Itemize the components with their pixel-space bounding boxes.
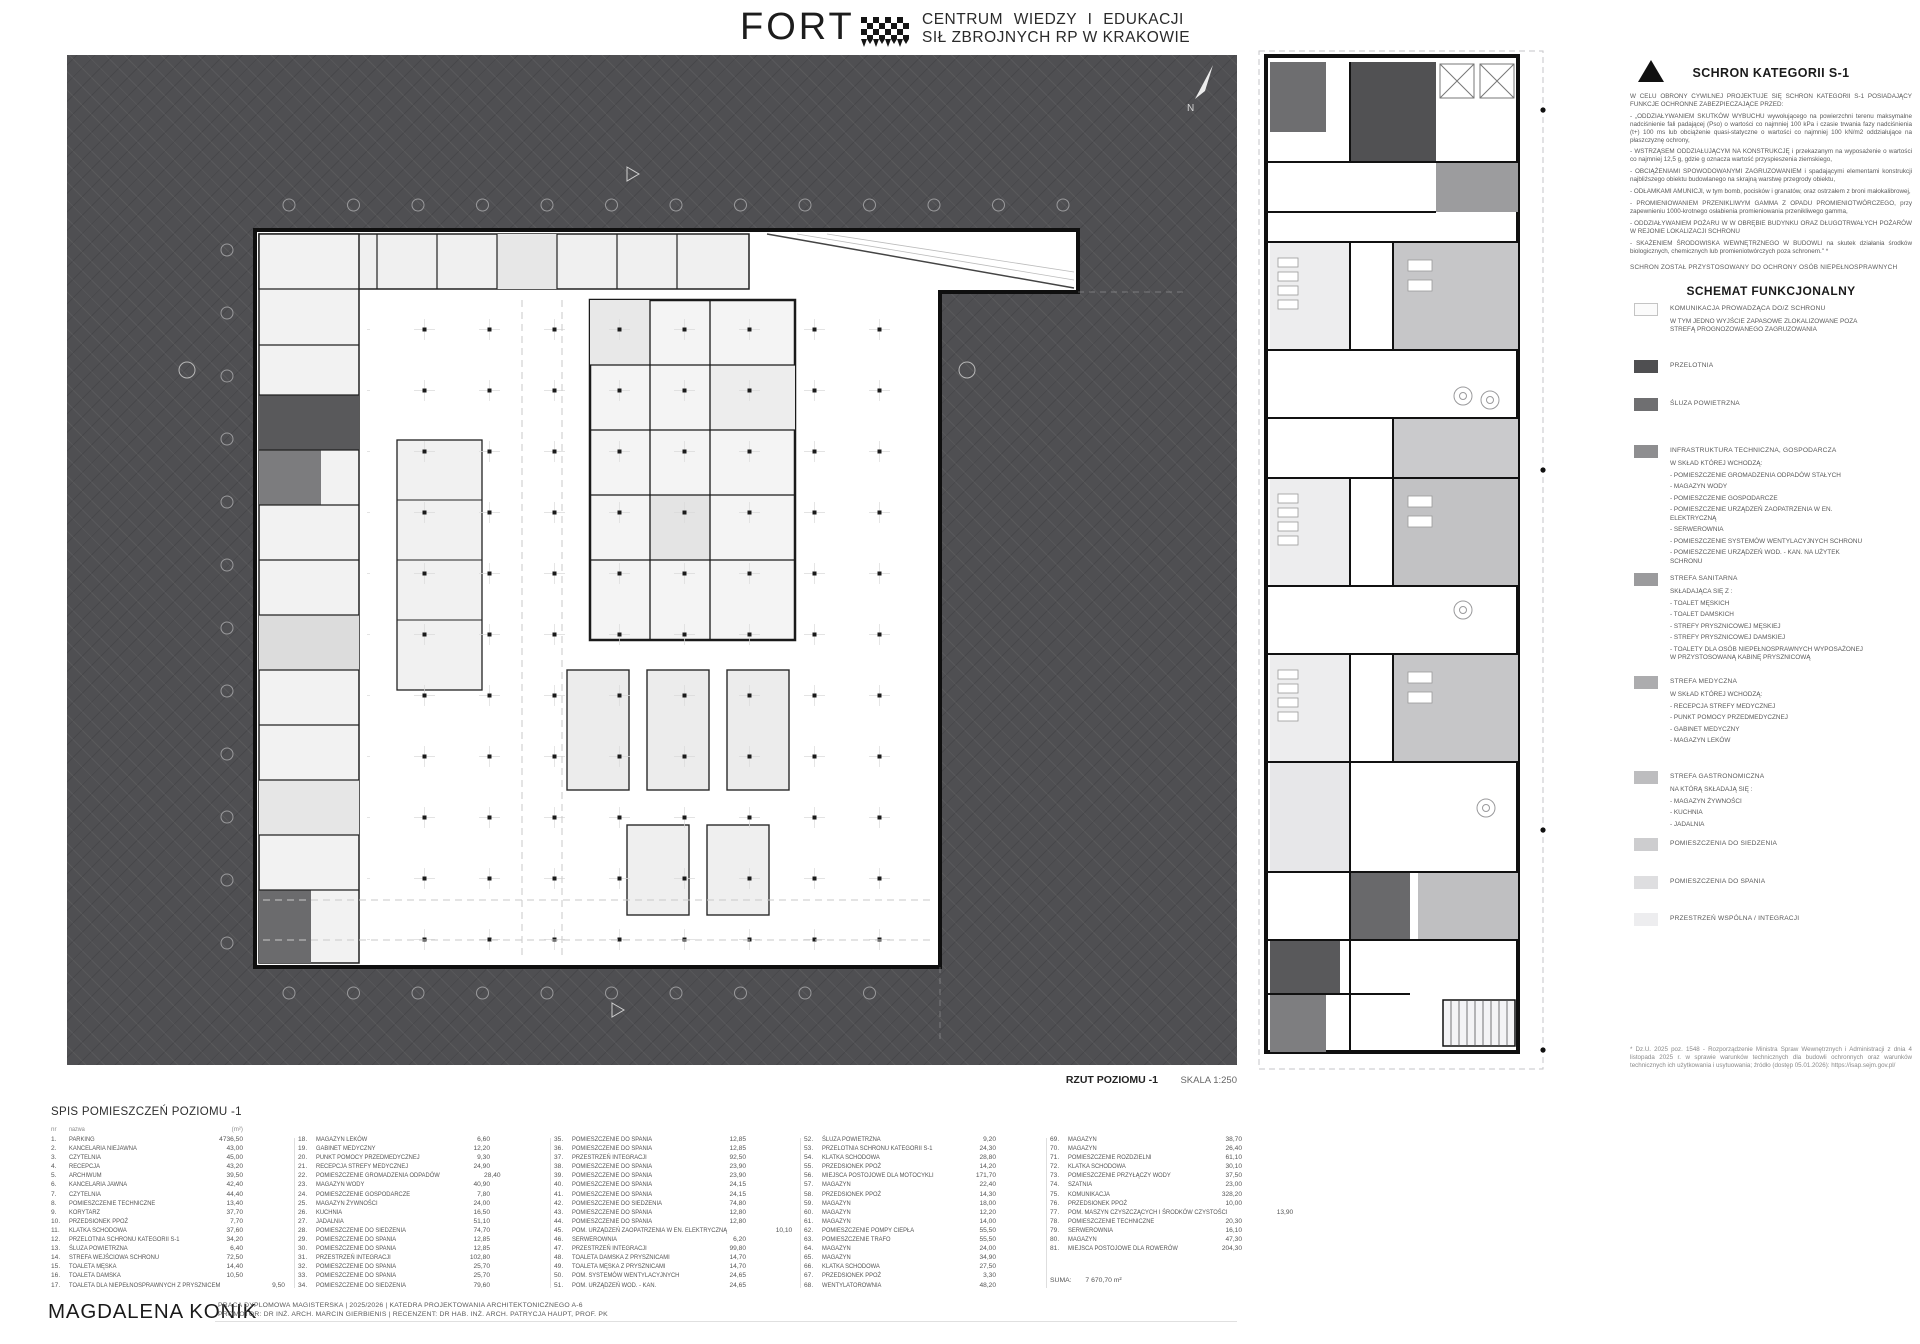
- room-name: MAGAZYN ŻYWNOŚCI: [316, 1200, 430, 1207]
- legend-label: PRZESTRZEŃ WSPÓLNA / INTEGRACJI: [1670, 915, 1799, 922]
- room-area: 24,15: [702, 1191, 746, 1198]
- room-name: PRZELOTNIA SCHRONU KATEGORII S-1: [822, 1145, 936, 1152]
- schedule-row: 58.PRZEDSIONEK PPOŻ14,30: [804, 1191, 996, 1200]
- room-name: TOALETA MĘSKA Z PRYSZNICAMI: [572, 1263, 686, 1270]
- room-name: KLATKA SCHODOWA: [822, 1263, 936, 1270]
- room-area: 12,85: [446, 1245, 490, 1252]
- room-number: 46.: [554, 1236, 572, 1243]
- schedule-row: 40.POMIESZCZENIE DO SPANIA24,15: [554, 1181, 746, 1190]
- room-name: PRZEDSIONEK PPOŻ: [822, 1191, 936, 1198]
- schedule-row: 68.WENTYLATOROWNIA48,20: [804, 1282, 996, 1291]
- shelter-bullet: - WSTRZĄSEM ODDZIAŁUJĄCYM NA KONSTRUKCJĘ…: [1630, 148, 1912, 164]
- room-area: 24,30: [952, 1145, 996, 1152]
- legend-subline: - GABINET MEDYCZNY: [1670, 726, 1870, 734]
- legend-label: STREFA GASTRONOMICZNA: [1670, 773, 1764, 780]
- room-area: 37,70: [199, 1209, 243, 1216]
- room-area: 7,80: [446, 1191, 490, 1198]
- schedule-row: 18.MAGAZYN LEKÓW6,60: [298, 1136, 490, 1145]
- legend-swatch: [1634, 838, 1658, 851]
- project-title-line2: SIŁ ZBROJNYCH RP W KRAKOWIE: [922, 29, 1190, 47]
- room-area: 12,20: [446, 1145, 490, 1152]
- schedule-row: 71.POMIESZCZENIE ROZDZIELNI61,10: [1050, 1154, 1242, 1163]
- room-number: 1.: [51, 1136, 69, 1143]
- room-number: 65.: [804, 1254, 822, 1261]
- room-name: POMIESZCZENIE DO SPANIA: [572, 1181, 686, 1188]
- legend-swatch: [1634, 913, 1658, 926]
- room-number: 76.: [1050, 1200, 1068, 1207]
- room-name: POMIESZCZENIE ROZDZIELNI: [1068, 1154, 1182, 1161]
- room-name: TOALETA DLA NIEPEŁNOSPRAWNYCH Z PRYSZNIC…: [69, 1282, 220, 1289]
- room-area: 23,90: [702, 1163, 746, 1170]
- room-number: 27.: [298, 1218, 316, 1225]
- room-area: 38,70: [1198, 1136, 1242, 1143]
- schedule-title: SPIS POMIESZCZEŃ POZIOMU -1: [51, 1106, 242, 1118]
- functional-scheme-title: SCHEMAT FUNKCJONALNY: [1630, 284, 1912, 298]
- schedule-row: 25.MAGAZYN ŻYWNOŚCI24,00: [298, 1200, 490, 1209]
- room-number: 78.: [1050, 1218, 1068, 1225]
- room-area: 22,40: [952, 1181, 996, 1188]
- schedule-row: 42.POMIESZCZENIE DO SIEDZENIA74,80: [554, 1200, 746, 1209]
- room-area: 72,50: [199, 1254, 243, 1261]
- room-number: 12.: [51, 1236, 69, 1243]
- room-name: MAGAZYN WODY: [316, 1181, 430, 1188]
- room-number: 57.: [804, 1181, 822, 1188]
- room-number: 35.: [554, 1136, 572, 1143]
- schedule-row: 2.KANCELARIA NIEJAWNA43,00: [51, 1145, 243, 1154]
- room-area: 48,20: [952, 1282, 996, 1289]
- room-area: 25,70: [446, 1263, 490, 1270]
- room-number: 44.: [554, 1218, 572, 1225]
- room-area: 55,50: [952, 1236, 996, 1243]
- room-number: 69.: [1050, 1136, 1068, 1143]
- legend-subline: - POMIESZCZENIE URZĄDZEŃ WOD. - KAN. NA …: [1670, 549, 1870, 565]
- room-name: SERWEROWNIA: [1068, 1227, 1182, 1234]
- room-name: POMIESZCZENIE DO SIEDZENIA: [572, 1200, 686, 1207]
- room-area: 10,00: [1198, 1200, 1242, 1207]
- room-number: 38.: [554, 1163, 572, 1170]
- room-area: 18,00: [952, 1200, 996, 1207]
- room-number: 56.: [804, 1172, 822, 1179]
- room-area: 39,50: [199, 1172, 243, 1179]
- room-name: PARKING: [69, 1136, 183, 1143]
- room-name: TOALETA MĘSKA: [69, 1263, 183, 1270]
- room-number: 43.: [554, 1209, 572, 1216]
- room-number: 4.: [51, 1163, 69, 1170]
- room-area: 99,80: [702, 1245, 746, 1252]
- room-number: 49.: [554, 1263, 572, 1270]
- room-area: 16,50: [446, 1209, 490, 1216]
- schedule-column: 18.MAGAZYN LEKÓW6,6019.GABINET MEDYCZNY1…: [298, 1136, 490, 1291]
- room-name: ŚLUZA POWIETRZNA: [69, 1245, 183, 1252]
- room-area: 44,40: [199, 1191, 243, 1198]
- room-area: 204,30: [1198, 1245, 1242, 1252]
- room-number: 18.: [298, 1136, 316, 1143]
- room-number: 71.: [1050, 1154, 1068, 1161]
- schedule-row: 13.ŚLUZA POWIETRZNA6,40: [51, 1245, 243, 1254]
- room-number: 64.: [804, 1245, 822, 1252]
- legend-subline: W SKŁAD KTÓREJ WCHODZĄ:: [1670, 691, 1870, 699]
- room-area: 24,00: [952, 1245, 996, 1252]
- room-area: 79,60: [446, 1282, 490, 1289]
- room-area: 51,10: [446, 1218, 490, 1225]
- legend-subline: - TOALETY DLA OSÓB NIEPEŁNOSPRAWNYCH WYP…: [1670, 646, 1870, 662]
- schedule-row: 51.POM. URZĄDZEŃ WOD. - KAN.24,65: [554, 1282, 746, 1291]
- room-name: WENTYLATOROWNIA: [822, 1282, 936, 1289]
- schedule-row: 21.RECEPCJA STREFY MEDYCZNEJ24,90: [298, 1163, 490, 1172]
- schedule-row: 60.MAGAZYN12,20: [804, 1209, 996, 1218]
- legend-subline: - JADALNIA: [1670, 821, 1870, 829]
- schedule-row: 72.KLATKA SCHODOWA30,10: [1050, 1163, 1242, 1172]
- room-number: 11.: [51, 1227, 69, 1234]
- room-area: 27,50: [952, 1263, 996, 1270]
- room-area: 12,20: [952, 1209, 996, 1216]
- room-name: STREFA WEJŚCIOWA SCHRONU: [69, 1254, 183, 1261]
- room-name: POMIESZCZENIE DO SPANIA: [572, 1172, 686, 1179]
- room-area: 24,90: [446, 1163, 490, 1170]
- room-name: TOALETA DAMSKA Z PRYSZNICAMI: [572, 1254, 686, 1261]
- room-name: POMIESZCZENIE GROMADZENIA ODPADÓW: [316, 1172, 440, 1179]
- schedule-column: 69.MAGAZYN38,7070.MAGAZYN26,4071.POMIESZ…: [1050, 1136, 1242, 1254]
- room-name: POMIESZCZENIE DO SPANIA: [572, 1163, 686, 1170]
- legend-label: STREFA MEDYCZNA: [1670, 678, 1737, 685]
- room-name: POMIESZCZENIE DO SPANIA: [316, 1236, 430, 1243]
- room-number: 17.: [51, 1282, 69, 1289]
- room-number: 2.: [51, 1145, 69, 1152]
- room-area: 13,40: [199, 1200, 243, 1207]
- room-area: 328,20: [1198, 1191, 1242, 1198]
- schedule-divider: [550, 1138, 551, 1288]
- room-area: 34,20: [199, 1236, 243, 1243]
- legend-subline: - PUNKT POMOCY PRZEDMEDYCZNEJ: [1670, 714, 1870, 722]
- room-name: RECEPCJA STREFY MEDYCZNEJ: [316, 1163, 430, 1170]
- room-area: 61,10: [1198, 1154, 1242, 1161]
- schedule-row: 39.POMIESZCZENIE DO SPANIA23,90: [554, 1172, 746, 1181]
- schedule-row: 57.MAGAZYN22,40: [804, 1181, 996, 1190]
- schedule-row: 23.MAGAZYN WODY40,90: [298, 1181, 490, 1190]
- room-number: 20.: [298, 1154, 316, 1161]
- room-name: POMIESZCZENIE TECHNICZNE: [1068, 1218, 1182, 1225]
- schedule-row: 55.PRZEDSIONEK PPOŻ14,20: [804, 1163, 996, 1172]
- schedule-row: 4.RECEPCJA43,20: [51, 1163, 243, 1172]
- schedule-row: 67.PRZEDSIONEK PPOŻ3,30: [804, 1272, 996, 1281]
- schedule-row: 28.POMIESZCZENIE DO SIEDZENIA74,70: [298, 1227, 490, 1236]
- legend-subline: - STREFY PRYSZNICOWEJ DAMSKIEJ: [1670, 634, 1870, 642]
- schedule-row: 1.PARKING4736,50: [51, 1136, 243, 1145]
- legend-label: PRZELOTNIA: [1670, 362, 1713, 369]
- room-number: 80.: [1050, 1236, 1068, 1243]
- room-name: KLATKA SCHODOWA: [1068, 1163, 1182, 1170]
- room-area: 30,10: [1198, 1163, 1242, 1170]
- schedule-row: 31.PRZESTRZEŃ INTEGRACJI102,80: [298, 1254, 490, 1263]
- room-name: PUNKT POMOCY PRZEDMEDYCZNEJ: [316, 1154, 430, 1161]
- schedule-row: 62.POMIESZCZENIE POMPY CIEPŁA55,50: [804, 1227, 996, 1236]
- room-name: MAGAZYN: [822, 1218, 936, 1225]
- room-name: PRZEDSIONEK PPOŻ: [1068, 1200, 1182, 1207]
- shelter-intro: W CELU OBRONY CYWILNEJ PROJEKTUJE SIĘ SC…: [1630, 93, 1912, 109]
- room-area: 16,10: [1198, 1227, 1242, 1234]
- room-name: POM. MASZYN CZYSZCZĄCYCH I ŚRODKÓW CZYST…: [1068, 1209, 1227, 1216]
- schedule-row: 44.POMIESZCZENIE DO SPANIA12,80: [554, 1218, 746, 1227]
- shelter-category-title: SCHRON KATEGORII S-1: [1630, 66, 1912, 80]
- room-name: SERWEROWNIA: [572, 1236, 686, 1243]
- schedule-row: 76.PRZEDSIONEK PPOŻ10,00: [1050, 1200, 1242, 1209]
- legend-sublist: NA KTÓRĄ SKŁADAJĄ SIĘ :- MAGAZYN ŻYWNOŚC…: [1670, 786, 1870, 832]
- legend-swatch: [1634, 676, 1658, 689]
- room-area: 9,50: [241, 1282, 285, 1289]
- room-name: PRZESTRZEŃ INTEGRACJI: [572, 1245, 686, 1252]
- room-area: 9,30: [446, 1154, 490, 1161]
- room-number: 47.: [554, 1245, 572, 1252]
- room-number: 61.: [804, 1218, 822, 1225]
- room-number: 50.: [554, 1272, 572, 1279]
- schedule-row: 73.POMIESZCZENIE PRZYŁĄCZY WODY37,50: [1050, 1172, 1242, 1181]
- schedule-row: 52.ŚLUZA POWIETRZNA9,20: [804, 1136, 996, 1145]
- schedule-row: 36.POMIESZCZENIE DO SPANIA12,85: [554, 1145, 746, 1154]
- shelter-bullet: - OBCIĄŻENIAMI SPOWODOWANYMI ZAGRUZOWANI…: [1630, 168, 1912, 184]
- room-name: POMIESZCZENIE DO SPANIA: [572, 1145, 686, 1152]
- stair-symbol: [1443, 1000, 1515, 1046]
- room-number: 54.: [804, 1154, 822, 1161]
- legend-swatch: [1634, 573, 1658, 586]
- schedule-row: 32.POMIESZCZENIE DO SPANIA25,70: [298, 1263, 490, 1272]
- room-number: 30.: [298, 1245, 316, 1252]
- schedule-row: 69.MAGAZYN38,70: [1050, 1136, 1242, 1145]
- room-number: 31.: [298, 1254, 316, 1261]
- room-name: MIEJSCA POSTOJOWE DLA MOTOCYKLI: [822, 1172, 936, 1179]
- schedule-row: 33.POMIESZCZENIE DO SPANIA25,70: [298, 1272, 490, 1281]
- footer-rule: [215, 1321, 1237, 1322]
- room-name: CZYTELNIA: [69, 1154, 183, 1161]
- schedule-header-nr: nr: [51, 1126, 69, 1133]
- room-area: 14,40: [199, 1263, 243, 1270]
- room-name: MIEJSCA POSTOJOWE DLA ROWERÓW: [1068, 1245, 1182, 1252]
- room-name: GABINET MEDYCZNY: [316, 1145, 430, 1152]
- legend-subline: - MAGAZYN LEKÓW: [1670, 737, 1870, 745]
- room-area: 102,80: [446, 1254, 490, 1261]
- shelter-bullet: - ODŁAMKAMI AMUNICJI, w tym bomb, pocisk…: [1630, 188, 1912, 196]
- room-number: 23.: [298, 1181, 316, 1188]
- room-area: 6,40: [199, 1245, 243, 1252]
- legend-subline: - KUCHNIA: [1670, 809, 1870, 817]
- room-number: 52.: [804, 1136, 822, 1143]
- room-name: TOALETA DAMSKA: [69, 1272, 183, 1279]
- legend-swatch: [1634, 876, 1658, 889]
- room-number: 74.: [1050, 1181, 1068, 1188]
- room-area: 4736,50: [199, 1136, 243, 1143]
- room-area: 6,20: [702, 1236, 746, 1243]
- room-area: 12,85: [702, 1145, 746, 1152]
- room-area: 6,60: [446, 1136, 490, 1143]
- room-name: KOMUNIKACJA: [1068, 1191, 1182, 1198]
- room-name: CZYTELNIA: [69, 1191, 183, 1198]
- schedule-row: 12.PRZELOTNIA SCHRONU KATEGORII S-134,20: [51, 1236, 243, 1245]
- room-name: POMIESZCZENIE TECHNICZNE: [69, 1200, 183, 1207]
- room-number: 67.: [804, 1272, 822, 1279]
- shelter-text-block: W CELU OBRONY CYWILNEJ PROJEKTUJE SIĘ SC…: [1630, 93, 1912, 259]
- schedule-row: 10.PRZEDSIONEK PPOŻ7,70: [51, 1218, 243, 1227]
- shelter-bullet: - ODDZIAŁYWANIEM POŻARU W W OBRĘBIE BUDY…: [1630, 220, 1912, 236]
- legend-swatch: [1634, 771, 1658, 784]
- room-name: POMIESZCZENIE TRAFO: [822, 1236, 936, 1243]
- floor-plan-level-minus1: N: [67, 55, 1237, 1065]
- room-area: 12,80: [702, 1209, 746, 1216]
- schedule-header-name: nazwa: [69, 1126, 183, 1133]
- fort-logo-text: FORT: [740, 6, 855, 49]
- schedule-row: 75.KOMUNIKACJA328,20: [1050, 1191, 1242, 1200]
- schedule-row: 64.MAGAZYN24,00: [804, 1245, 996, 1254]
- room-area: 74,80: [702, 1200, 746, 1207]
- legend-subline: W TYM JEDNO WYJŚCIE ZAPASOWE ZLOKALIZOWA…: [1670, 318, 1870, 334]
- room-area: 24,15: [702, 1181, 746, 1188]
- legend-label: INFRASTRUKTURA TECHNICZNA, GOSPODARCZA: [1670, 447, 1836, 454]
- room-name: MAGAZYN LEKÓW: [316, 1136, 430, 1143]
- room-number: 55.: [804, 1163, 822, 1170]
- room-name: KUCHNIA: [316, 1209, 430, 1216]
- schedule-row: 48.TOALETA DAMSKA Z PRYSZNICAMI14,70: [554, 1254, 746, 1263]
- room-area: 20,30: [1198, 1218, 1242, 1225]
- room-number: 22.: [298, 1172, 316, 1179]
- room-name: MAGAZYN: [1068, 1236, 1182, 1243]
- legend-subline: - POMIESZCZENIE GOSPODARCZE: [1670, 495, 1870, 503]
- legend-subline: - POMIESZCZENIE SYSTEMÓW WENTYLACYJNYCH …: [1670, 538, 1870, 546]
- room-name: POMIESZCZENIE DO SPANIA: [572, 1136, 686, 1143]
- room-number: 33.: [298, 1272, 316, 1279]
- room-area: 12,80: [702, 1218, 746, 1225]
- room-area: 14,70: [702, 1254, 746, 1261]
- room-area: 34,90: [952, 1254, 996, 1261]
- room-name: KORYTARZ: [69, 1209, 183, 1216]
- room-name: RECEPCJA: [69, 1163, 183, 1170]
- schedule-row: 20.PUNKT POMOCY PRZEDMEDYCZNEJ9,30: [298, 1154, 490, 1163]
- room-name: PRZEDSIONEK PPOŻ: [69, 1218, 183, 1225]
- room-area: 43,00: [199, 1145, 243, 1152]
- room-area: 37,50: [1198, 1172, 1242, 1179]
- schedule-row: 41.POMIESZCZENIE DO SPANIA24,15: [554, 1191, 746, 1200]
- room-number: 72.: [1050, 1163, 1068, 1170]
- room-number: 81.: [1050, 1245, 1068, 1252]
- room-name: SZATNIA: [1068, 1181, 1182, 1188]
- schedule-row: 50.POM. SYSTEMÓW WENTYLACYJNYCH24,65: [554, 1272, 746, 1281]
- room-number: 62.: [804, 1227, 822, 1234]
- schedule-row: 16.TOALETA DAMSKA10,50: [51, 1272, 243, 1281]
- schedule-row: 7.CZYTELNIA44,40: [51, 1191, 243, 1200]
- room-area: 37,60: [199, 1227, 243, 1234]
- schedule-divider: [294, 1138, 295, 1288]
- room-number: 13.: [51, 1245, 69, 1252]
- room-name: MAGAZYN: [822, 1200, 936, 1207]
- legend-label: ŚLUZA POWIETRZNA: [1670, 400, 1740, 407]
- schedule-row: 9.KORYTARZ37,70: [51, 1209, 243, 1218]
- legend-swatch: [1634, 445, 1658, 458]
- room-number: 37.: [554, 1154, 572, 1161]
- room-name: ARCHIWUM: [69, 1172, 183, 1179]
- room-area: 14,00: [952, 1218, 996, 1225]
- schedule-column: 1.PARKING4736,502.KANCELARIA NIEJAWNA43,…: [51, 1136, 243, 1291]
- room-area: 45,00: [199, 1154, 243, 1161]
- room-number: 15.: [51, 1263, 69, 1270]
- shelter-bullet: - PROMIENIOWANIEM PRZENIKLIWYM GAMMA Z O…: [1630, 200, 1912, 216]
- room-area: 171,70: [952, 1172, 996, 1179]
- schedule-row: 27.JADALNIA51,10: [298, 1218, 490, 1227]
- room-area: 7,70: [199, 1218, 243, 1225]
- room-number: 59.: [804, 1200, 822, 1207]
- room-name: MAGAZYN: [822, 1209, 936, 1216]
- room-name: PRZELOTNIA SCHRONU KATEGORII S-1: [69, 1236, 183, 1243]
- schedule-row: 53.PRZELOTNIA SCHRONU KATEGORII S-124,30: [804, 1145, 996, 1154]
- room-area: 42,40: [199, 1181, 243, 1188]
- room-name: POMIESZCZENIE DO SPANIA: [572, 1209, 686, 1216]
- room-name: POMIESZCZENIE GOSPODARCZE: [316, 1191, 430, 1198]
- room-area: 24,65: [702, 1282, 746, 1289]
- plan-caption: RZUT POZIOMU -1 SKALA 1:250: [957, 1070, 1237, 1088]
- room-number: 5.: [51, 1172, 69, 1179]
- legend-sublist: W SKŁAD KTÓREJ WCHODZĄ:- POMIESZCZENIE G…: [1670, 460, 1870, 569]
- north-label: N: [1187, 103, 1194, 114]
- schedule-row: 38.POMIESZCZENIE DO SPANIA23,90: [554, 1163, 746, 1172]
- room-name: POM. SYSTEMÓW WENTYLACYJNYCH: [572, 1272, 686, 1279]
- room-number: 9.: [51, 1209, 69, 1216]
- shelter-bullet: - SKAŻENIEM ŚRODOWISKA WEWNĘTRZNEGO W BU…: [1630, 240, 1912, 256]
- room-name: MAGAZYN: [1068, 1136, 1182, 1143]
- schedule-row: 17.TOALETA DLA NIEPEŁNOSPRAWNYCH Z PRYSZ…: [51, 1282, 243, 1291]
- schedule-column: 35.POMIESZCZENIE DO SPANIA12,8536.POMIES…: [554, 1136, 746, 1291]
- room-name: POMIESZCZENIE DO SIEDZENIA: [316, 1282, 430, 1289]
- room-area: 10,10: [748, 1227, 792, 1234]
- shelter-strip-plan: [1258, 50, 1558, 1072]
- room-area: 23,00: [1198, 1181, 1242, 1188]
- legend-swatch: [1634, 303, 1658, 316]
- room-number: 45.: [554, 1227, 572, 1234]
- room-number: 41.: [554, 1191, 572, 1198]
- legend-subline: W SKŁAD KTÓREJ WCHODZĄ:: [1670, 460, 1870, 468]
- room-name: POMIESZCZENIE POMPY CIEPŁA: [822, 1227, 936, 1234]
- room-area: 23,90: [702, 1172, 746, 1179]
- schedule-header: nr nazwa (m²): [51, 1126, 243, 1133]
- accessibility-note: SCHRON ZOSTAŁ PRZYSTOSOWANY DO OCHRONY O…: [1630, 264, 1912, 271]
- room-area: 40,90: [446, 1181, 490, 1188]
- room-name: PRZEDSIONEK PPOŻ: [822, 1163, 936, 1170]
- drawing-sheet: FORT CENTRUM WIEDZY I EDUKACJI SIŁ ZBROJ…: [0, 0, 1920, 1344]
- room-name: POMIESZCZENIE DO SIEDZENIA: [316, 1227, 430, 1234]
- north-arrow-icon: N: [1187, 65, 1213, 114]
- room-name: PRZESTRZEŃ INTEGRACJI: [572, 1154, 686, 1161]
- thesis-info-line2: PROMOTOR: DR INŻ. ARCH. MARCIN GIERBIENI…: [218, 1310, 608, 1319]
- schedule-row: 56.MIEJSCA POSTOJOWE DLA MOTOCYKLI171,70: [804, 1172, 996, 1181]
- room-area: 55,50: [952, 1227, 996, 1234]
- schedule-row: 35.POMIESZCZENIE DO SPANIA12,85: [554, 1136, 746, 1145]
- legend-subline: SKŁADAJĄCA SIĘ Z :: [1670, 588, 1870, 596]
- legend-subline: NA KTÓRĄ SKŁADAJĄ SIĘ :: [1670, 786, 1870, 794]
- schedule-row: 74.SZATNIA23,00: [1050, 1181, 1242, 1190]
- schedule-divider: [800, 1138, 801, 1288]
- room-number: 25.: [298, 1200, 316, 1207]
- project-title: CENTRUM WIEDZY I EDUKACJI SIŁ ZBROJNYCH …: [922, 11, 1190, 47]
- room-name: MAGAZYN: [822, 1245, 936, 1252]
- room-area: 9,20: [952, 1136, 996, 1143]
- room-number: 36.: [554, 1145, 572, 1152]
- room-name: KLATKA SCHODOWA: [822, 1154, 936, 1161]
- room-number: 19.: [298, 1145, 316, 1152]
- room-area: 24,65: [702, 1272, 746, 1279]
- schedule-row: 29.POMIESZCZENIE DO SPANIA12,85: [298, 1236, 490, 1245]
- room-number: 75.: [1050, 1191, 1068, 1198]
- schedule-row: 46.SERWEROWNIA6,20: [554, 1236, 746, 1245]
- room-number: 66.: [804, 1263, 822, 1270]
- thesis-info-line1: PRACA DYPLOMOWA MAGISTERSKA | 2025/2026 …: [218, 1301, 608, 1310]
- schedule-row: 54.KLATKA SCHODOWA28,80: [804, 1154, 996, 1163]
- schedule-row: 43.POMIESZCZENIE DO SPANIA12,80: [554, 1209, 746, 1218]
- schedule-row: 22.POMIESZCZENIE GROMADZENIA ODPADÓW28,4…: [298, 1172, 490, 1181]
